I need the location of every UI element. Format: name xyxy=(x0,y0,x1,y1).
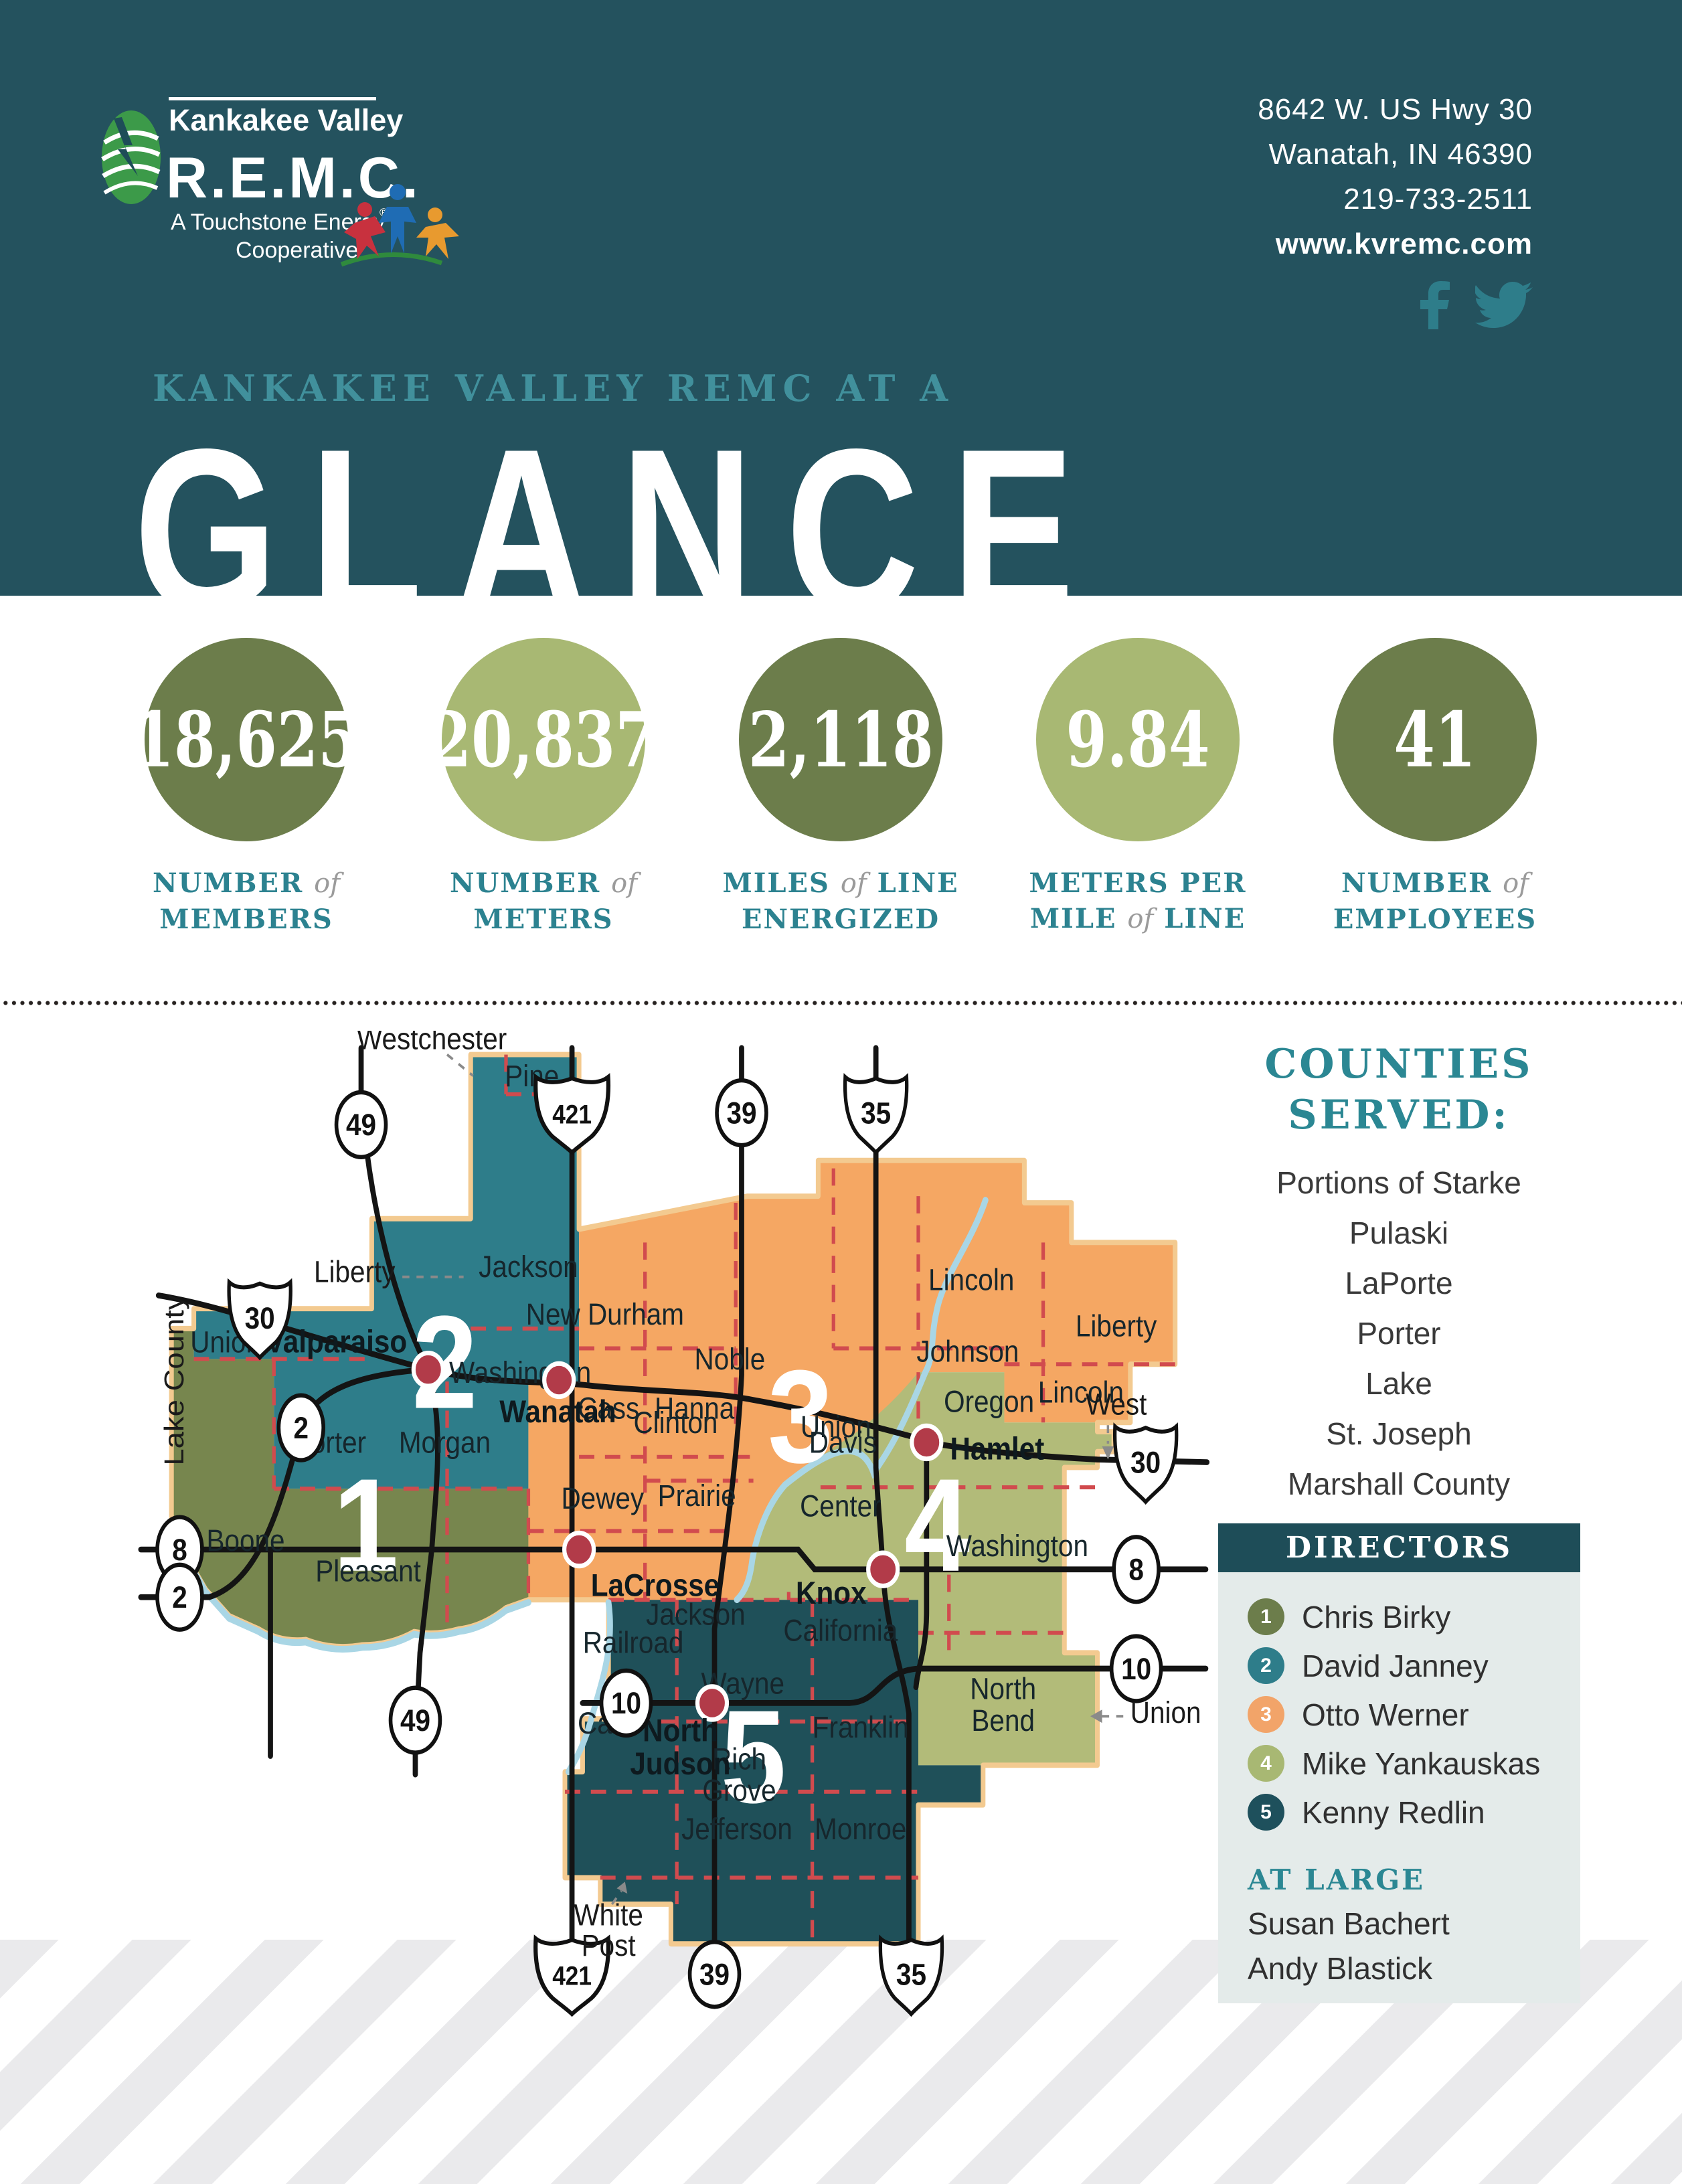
district-number-4: 4 xyxy=(904,1451,970,1599)
svg-text:35: 35 xyxy=(861,1096,891,1130)
address-block: 8642 W. US Hwy 30 Wanatah, IN 46390 219-… xyxy=(1258,87,1533,266)
stat-label: NUMBER ofEMPLOYEES xyxy=(1315,865,1555,937)
stat-label: METERS PERMILE of LINE xyxy=(1017,865,1258,937)
town-label: Hamlet xyxy=(950,1430,1045,1466)
director-district-badge: 2 xyxy=(1248,1647,1284,1684)
township-label: Center xyxy=(800,1489,881,1523)
township-label: Boone xyxy=(207,1524,285,1558)
stat-card: 41NUMBER ofEMPLOYEES xyxy=(1315,638,1555,937)
stat-value: 20,837 xyxy=(430,695,657,784)
county-item: LaPorte xyxy=(1198,1258,1600,1309)
stat-card: 2,118MILES of LINEENERGIZED xyxy=(720,638,961,937)
stat-circle: 18,625 xyxy=(145,638,348,841)
facebook-icon[interactable] xyxy=(1420,281,1450,329)
director-row: 4Mike Yankauskas xyxy=(1248,1739,1580,1788)
county-item: St. Joseph xyxy=(1198,1409,1600,1459)
svg-text:8: 8 xyxy=(172,1533,187,1568)
svg-text:35: 35 xyxy=(896,1958,926,1992)
town-dot-wanatah xyxy=(544,1363,574,1396)
directors-panel: DIRECTORS 1Chris Birky2David Janney3Otto… xyxy=(1218,1523,1580,2003)
township-label: Railroad xyxy=(583,1626,684,1660)
highway-shield-2: 2 xyxy=(278,1396,323,1460)
township-label: Monroe xyxy=(815,1813,906,1847)
township-label: Liberty xyxy=(1076,1310,1157,1344)
stat-label: NUMBER ofMEMBERS xyxy=(126,865,367,937)
director-row: 5Kenny Redlin xyxy=(1248,1788,1580,1837)
map-note-westchester: Westchester xyxy=(357,1031,507,1056)
stat-label: MILES of LINEENERGIZED xyxy=(720,865,961,937)
town-dot-valparaiso xyxy=(414,1353,443,1385)
county-item: Lake xyxy=(1198,1359,1600,1409)
town-label: Wanatah xyxy=(499,1394,616,1430)
director-district-badge: 4 xyxy=(1248,1745,1284,1782)
counties-title: COUNTIES SERVED: xyxy=(1198,1039,1600,1141)
service-territory-map: 12345 PineJacksonNew DurhamWashingtonLin… xyxy=(94,1031,1272,2075)
header-band: Kankakee Valley R.E.M.C. A Touchstone En… xyxy=(0,0,1682,596)
stat-value: 9.84 xyxy=(1066,695,1209,784)
township-label: Franklin xyxy=(813,1711,909,1745)
map-note-white-post: WhitePost xyxy=(574,1898,643,1962)
dotted-divider xyxy=(0,1000,1682,1006)
township-label: Jackson xyxy=(479,1250,578,1284)
counties-list: Portions of StarkePulaskiLaPortePorterLa… xyxy=(1198,1158,1600,1509)
svg-text:39: 39 xyxy=(699,1958,730,1992)
stat-circle: 20,837 xyxy=(442,638,645,841)
township-label: Oregon xyxy=(944,1385,1034,1419)
town-dot-knox xyxy=(868,1553,898,1586)
town-label: LaCrosse xyxy=(591,1567,720,1603)
at-large-list: Susan BachertAndy Blastick xyxy=(1248,1902,1580,1991)
address-line-1: 8642 W. US Hwy 30 xyxy=(1258,87,1533,132)
address-line-2: Wanatah, IN 46390 xyxy=(1258,132,1533,177)
directors-header: DIRECTORS xyxy=(1218,1523,1580,1572)
logo-org-name: Kankakee Valley xyxy=(169,103,403,137)
director-name: Otto Werner xyxy=(1302,1697,1469,1733)
township-label: New Durham xyxy=(526,1298,684,1332)
director-district-badge: 1 xyxy=(1248,1598,1284,1635)
svg-text:10: 10 xyxy=(611,1687,641,1721)
stat-circle: 2,118 xyxy=(739,638,942,841)
at-large-label: AT LARGE xyxy=(1248,1863,1580,1896)
township-label: Johnson xyxy=(916,1335,1019,1369)
director-district-badge: 5 xyxy=(1248,1794,1284,1831)
highway-shield-49: 49 xyxy=(337,1092,386,1157)
svg-text:30: 30 xyxy=(245,1302,275,1336)
stat-circle: 41 xyxy=(1333,638,1537,841)
map-note-liberty: Liberty xyxy=(314,1256,396,1290)
director-row: 2David Janney xyxy=(1248,1641,1580,1690)
county-item: Pulaski xyxy=(1198,1208,1600,1258)
stat-value: 18,625 xyxy=(133,695,359,784)
svg-text:421: 421 xyxy=(552,1099,592,1128)
township-label: NorthBend xyxy=(970,1672,1036,1738)
stats-row: 18,625NUMBER ofMEMBERS20,837NUMBER ofMET… xyxy=(0,638,1682,999)
township-label: Dewey xyxy=(561,1482,644,1516)
highway-shield-39: 39 xyxy=(717,1080,766,1145)
logo-tagline-2: Cooperative xyxy=(236,238,358,263)
svg-text:39: 39 xyxy=(726,1096,756,1130)
director-name: Mike Yankauskas xyxy=(1302,1746,1540,1782)
director-district-badge: 3 xyxy=(1248,1696,1284,1733)
svg-text:421: 421 xyxy=(552,1961,592,1991)
director-row: 3Otto Werner xyxy=(1248,1690,1580,1739)
infographic-page: Kankakee Valley R.E.M.C. A Touchstone En… xyxy=(0,0,1682,2184)
highway-shield-49: 49 xyxy=(391,1688,440,1753)
town-label: Knox xyxy=(796,1575,867,1611)
svg-text:10: 10 xyxy=(1121,1653,1151,1687)
township-label: Davis xyxy=(809,1426,877,1460)
highway-shield-35: 35 xyxy=(880,1938,942,2014)
highway-shield-39: 39 xyxy=(690,1942,740,2007)
county-item: Porter xyxy=(1198,1309,1600,1359)
stat-label: NUMBER ofMETERS xyxy=(423,865,664,937)
logo-acronym: R.E.M.C. xyxy=(166,146,421,210)
stat-circle: 9.84 xyxy=(1036,638,1240,841)
county-item: Marshall County xyxy=(1198,1459,1600,1509)
director-name: Kenny Redlin xyxy=(1302,1794,1485,1831)
director-name: Chris Birky xyxy=(1302,1599,1450,1635)
logo-overline xyxy=(169,97,376,100)
highway-shield-10: 10 xyxy=(602,1671,651,1736)
stat-card: 18,625NUMBER ofMEMBERS xyxy=(126,638,367,937)
township-label: Washington xyxy=(946,1529,1088,1564)
stat-value: 2,118 xyxy=(748,695,934,784)
directors-list: 1Chris Birky2David Janney3Otto Werner4Mi… xyxy=(1218,1572,1580,1837)
highway-shield-8: 8 xyxy=(1114,1537,1159,1602)
town-dot-hamlet xyxy=(912,1426,941,1458)
twitter-icon[interactable] xyxy=(1475,282,1533,329)
social-icons xyxy=(1420,281,1533,329)
stat-card: 20,837NUMBER ofMETERS xyxy=(423,638,664,937)
website-link[interactable]: www.kvremc.com xyxy=(1258,222,1533,266)
county-item: Portions of Starke xyxy=(1198,1158,1600,1208)
town-dot-lacrosse xyxy=(564,1533,594,1566)
township-label: Jefferson xyxy=(681,1813,792,1847)
stat-value: 41 xyxy=(1394,695,1477,784)
town-label: Valparaiso xyxy=(266,1323,407,1359)
svg-text:49: 49 xyxy=(346,1108,376,1143)
township-label: Pleasant xyxy=(315,1554,421,1588)
page-title: GLANCE xyxy=(134,398,1106,665)
phone-number: 219-733-2511 xyxy=(1258,177,1533,222)
at-large-name: Susan Bachert xyxy=(1248,1902,1580,1946)
township-label: Noble xyxy=(695,1343,766,1377)
counties-served: COUNTIES SERVED: Portions of StarkePulas… xyxy=(1198,1039,1600,1509)
svg-text:49: 49 xyxy=(400,1704,430,1738)
township-label: Hanna xyxy=(655,1392,734,1426)
director-name: David Janney xyxy=(1302,1648,1489,1684)
highway-shield-2: 2 xyxy=(157,1565,202,1630)
svg-text:2: 2 xyxy=(293,1412,309,1446)
highway-shield-35: 35 xyxy=(845,1077,907,1153)
highway-shield-10: 10 xyxy=(1112,1636,1161,1701)
township-label: Prairie xyxy=(658,1479,736,1513)
at-large-name: Andy Blastick xyxy=(1248,1946,1580,1991)
kvremc-logo: Kankakee Valley R.E.M.C. A Touchstone En… xyxy=(87,64,502,284)
township-label: California xyxy=(783,1614,898,1648)
stat-card: 9.84METERS PERMILE of LINE xyxy=(1017,638,1258,937)
township-label: Morgan xyxy=(399,1426,491,1460)
svg-text:30: 30 xyxy=(1130,1446,1161,1480)
svg-text:8: 8 xyxy=(1128,1553,1144,1587)
map-note-union: Union xyxy=(1130,1696,1201,1730)
svg-text:2: 2 xyxy=(172,1581,187,1615)
township-label: Lincoln xyxy=(928,1263,1014,1297)
map-note-west: West xyxy=(1086,1388,1147,1422)
map-note-lake-county: Lake County xyxy=(159,1294,189,1466)
highway-shield-30: 30 xyxy=(1115,1426,1177,1502)
director-row: 1Chris Birky xyxy=(1248,1592,1580,1641)
